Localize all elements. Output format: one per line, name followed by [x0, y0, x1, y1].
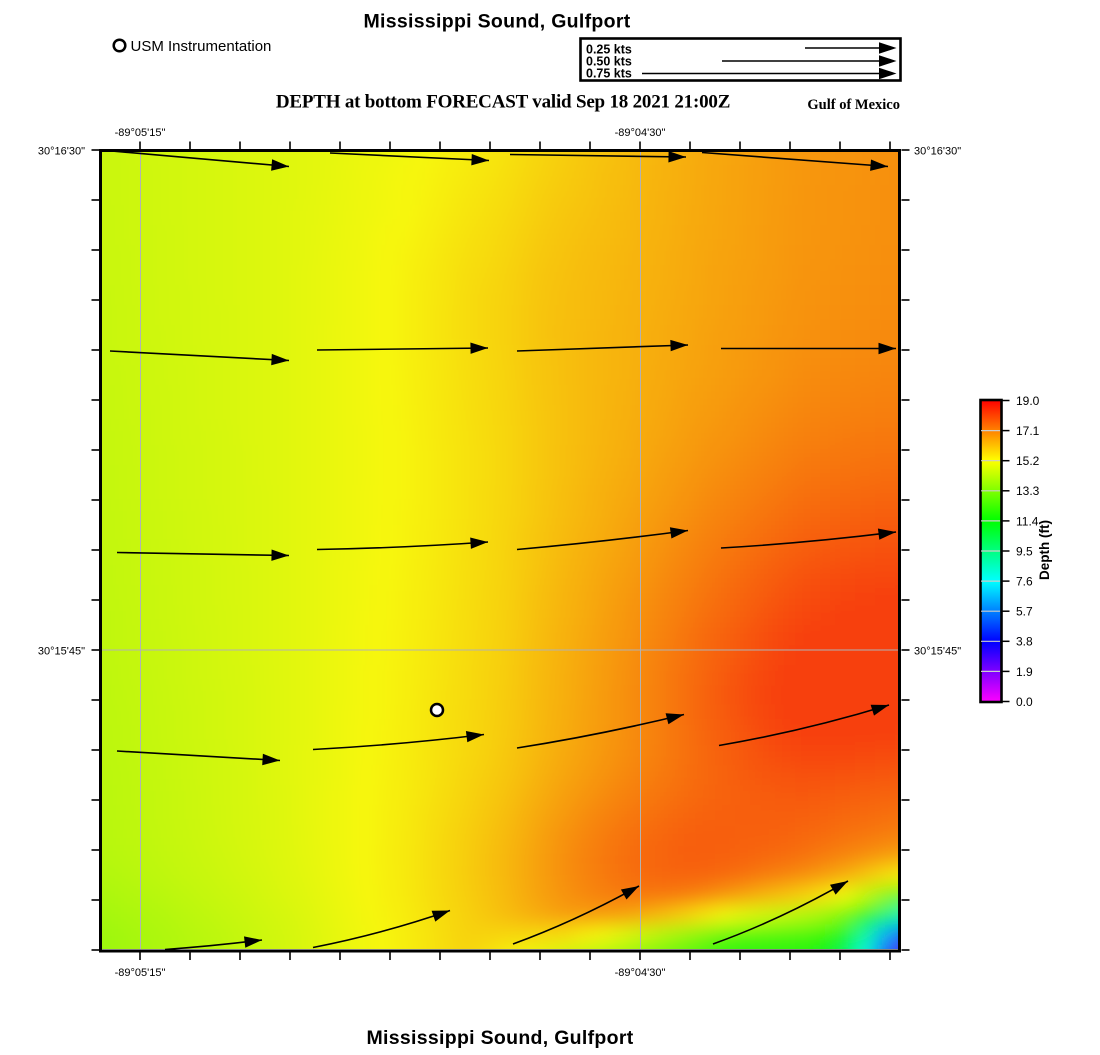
- svg-text:9.5: 9.5: [1016, 544, 1033, 558]
- svg-text:-89°05'15": -89°05'15": [115, 127, 166, 139]
- svg-text:1.9: 1.9: [1016, 665, 1033, 679]
- svg-text:13.3: 13.3: [1016, 484, 1040, 498]
- svg-text:0.0: 0.0: [1016, 695, 1033, 709]
- svg-text:30°16'30": 30°16'30": [914, 146, 961, 158]
- svg-text:-89°04'30": -89°04'30": [615, 127, 666, 139]
- svg-text:USM Instrumentation: USM Instrumentation: [131, 38, 272, 55]
- svg-text:DEPTH at bottom FORECAST valid: DEPTH at bottom FORECAST valid Sep 18 20…: [276, 92, 730, 113]
- svg-text:30°15'45": 30°15'45": [38, 646, 85, 658]
- svg-text:Mississippi Sound, Gulfport: Mississippi Sound, Gulfport: [363, 11, 630, 33]
- svg-text:Mississippi Sound, Gulfport: Mississippi Sound, Gulfport: [366, 1027, 633, 1049]
- svg-text:Depth (ft): Depth (ft): [1037, 520, 1052, 580]
- svg-text:-89°04'30": -89°04'30": [615, 967, 666, 979]
- svg-text:5.7: 5.7: [1016, 605, 1033, 619]
- svg-text:15.2: 15.2: [1016, 454, 1040, 468]
- svg-text:11.4: 11.4: [1016, 514, 1039, 528]
- svg-text:30°16'30": 30°16'30": [38, 146, 85, 158]
- svg-text:19.0: 19.0: [1016, 394, 1040, 408]
- svg-text:7.6: 7.6: [1016, 575, 1033, 589]
- svg-text:0.75 kts: 0.75 kts: [586, 67, 632, 81]
- svg-text:Gulf of Mexico: Gulf of Mexico: [807, 97, 900, 113]
- svg-text:17.1: 17.1: [1016, 424, 1040, 438]
- svg-text:3.8: 3.8: [1016, 635, 1033, 649]
- svg-text:30°15'45": 30°15'45": [914, 646, 961, 658]
- svg-text:-89°05'15": -89°05'15": [115, 967, 166, 979]
